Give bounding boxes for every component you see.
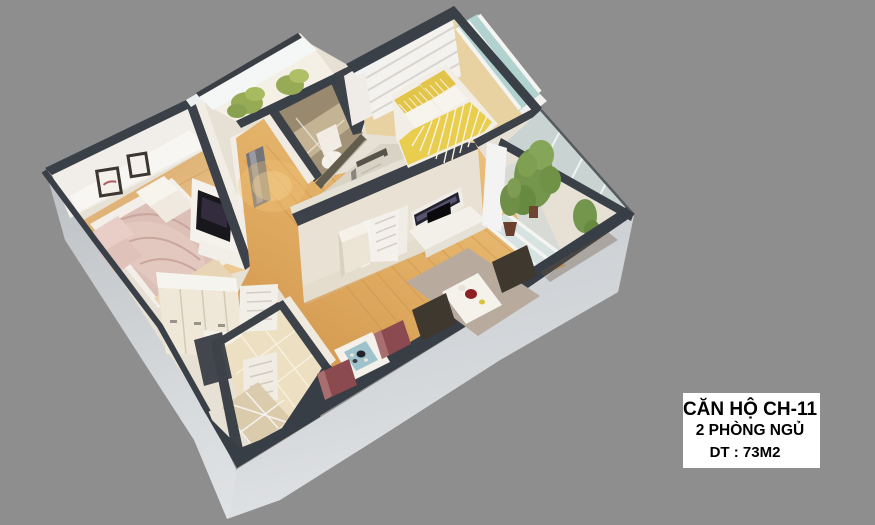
svg-text:DT : 73M2: DT : 73M2 xyxy=(710,444,781,461)
svg-text:2 PHÒNG NGỦ: 2 PHÒNG NGỦ xyxy=(696,421,805,439)
svg-text:CĂN HỘ CH-11: CĂN HỘ CH-11 xyxy=(683,398,818,420)
